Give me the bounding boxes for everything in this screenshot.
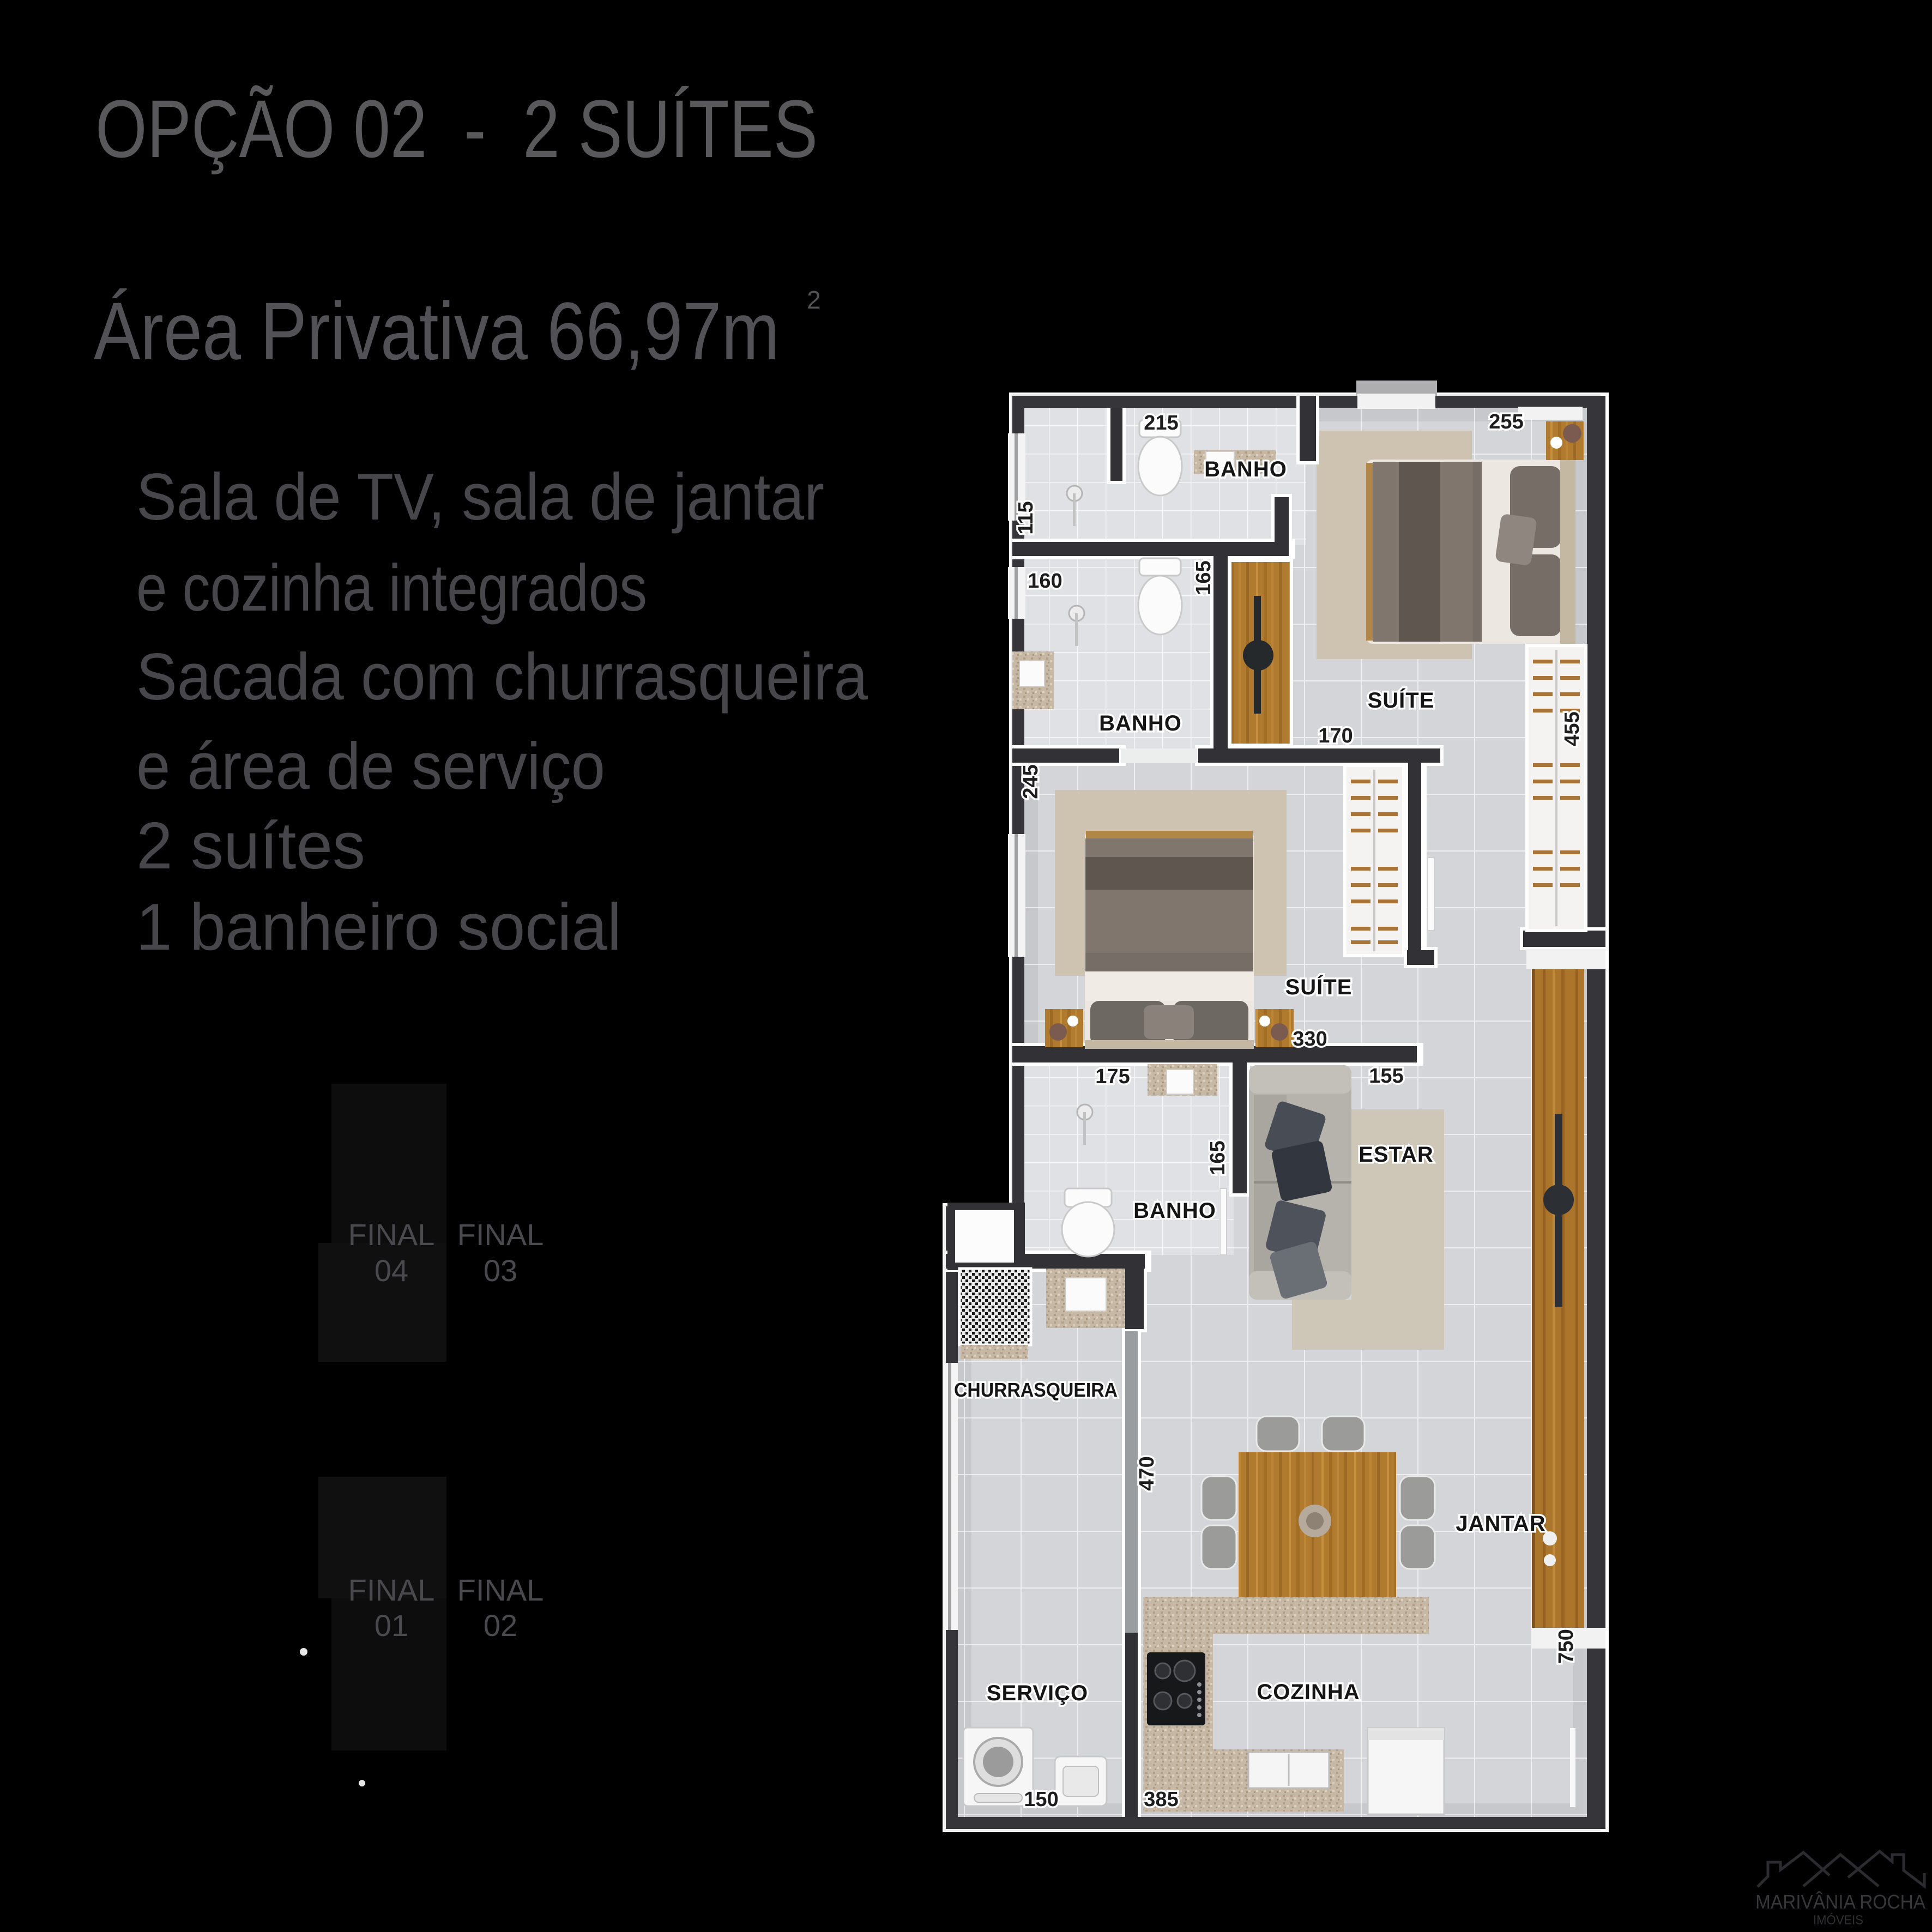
svg-text:BANHO: BANHO xyxy=(1204,457,1287,481)
svg-text:FINAL: FINAL xyxy=(348,1217,435,1252)
svg-text:455: 455 xyxy=(1561,711,1584,746)
svg-text:1 banheiro social: 1 banheiro social xyxy=(136,890,621,964)
svg-text:04: 04 xyxy=(375,1253,408,1288)
svg-text:330: 330 xyxy=(1293,1028,1327,1050)
svg-text:e área de serviço: e área de serviço xyxy=(136,729,605,803)
svg-text:MARIVÂNIA ROCHA: MARIVÂNIA ROCHA xyxy=(1755,1891,1925,1913)
svg-text:IMÓVEIS: IMÓVEIS xyxy=(1813,1913,1863,1928)
svg-text:160: 160 xyxy=(1028,570,1062,593)
svg-text:e cozinha integrados: e cozinha integrados xyxy=(136,551,647,625)
svg-text:385: 385 xyxy=(1144,1788,1178,1811)
svg-text:Área Privativa 66,97m: Área Privativa 66,97m xyxy=(94,285,780,377)
svg-text:470: 470 xyxy=(1136,1456,1158,1490)
svg-text:02: 02 xyxy=(484,1608,517,1643)
svg-text:150: 150 xyxy=(1024,1788,1058,1811)
svg-text:165: 165 xyxy=(1192,560,1215,595)
svg-text:155: 155 xyxy=(1369,1065,1403,1088)
svg-text:Sacada com churrasqueira: Sacada com churrasqueira xyxy=(136,639,868,714)
svg-text:CHURRASQUEIRA: CHURRASQUEIRA xyxy=(954,1379,1118,1401)
svg-text:FINAL: FINAL xyxy=(457,1573,544,1607)
svg-text:FINAL: FINAL xyxy=(457,1217,544,1252)
svg-text:2: 2 xyxy=(807,286,821,314)
svg-text:SERVIÇO: SERVIÇO xyxy=(987,1681,1088,1705)
svg-text:115: 115 xyxy=(1015,501,1037,534)
svg-text:COZINHA: COZINHA xyxy=(1257,1680,1360,1704)
svg-text:750: 750 xyxy=(1555,1629,1578,1663)
svg-text:ESTAR: ESTAR xyxy=(1359,1143,1434,1167)
svg-text:165: 165 xyxy=(1206,1140,1229,1175)
svg-text:03: 03 xyxy=(484,1253,517,1288)
svg-text:Sala de TV, sala de jantar: Sala de TV, sala de jantar xyxy=(136,460,824,534)
svg-text:OPÇÃO 02 - 2 SUÍTES: OPÇÃO 02 - 2 SUÍTES xyxy=(95,83,818,174)
svg-text:255: 255 xyxy=(1489,410,1523,433)
svg-text:BANHO: BANHO xyxy=(1099,711,1182,735)
svg-text:175: 175 xyxy=(1095,1065,1130,1088)
svg-text:SUÍTE: SUÍTE xyxy=(1285,975,1353,999)
svg-text:215: 215 xyxy=(1144,412,1178,434)
svg-text:245: 245 xyxy=(1019,764,1042,799)
svg-text:01: 01 xyxy=(375,1608,408,1643)
svg-text:2 suítes: 2 suítes xyxy=(136,808,365,883)
svg-text:FINAL: FINAL xyxy=(348,1573,435,1607)
svg-text:SUÍTE: SUÍTE xyxy=(1368,688,1435,713)
svg-text:BANHO: BANHO xyxy=(1133,1199,1216,1223)
svg-text:170: 170 xyxy=(1318,724,1353,747)
svg-text:JANTAR: JANTAR xyxy=(1456,1512,1545,1536)
